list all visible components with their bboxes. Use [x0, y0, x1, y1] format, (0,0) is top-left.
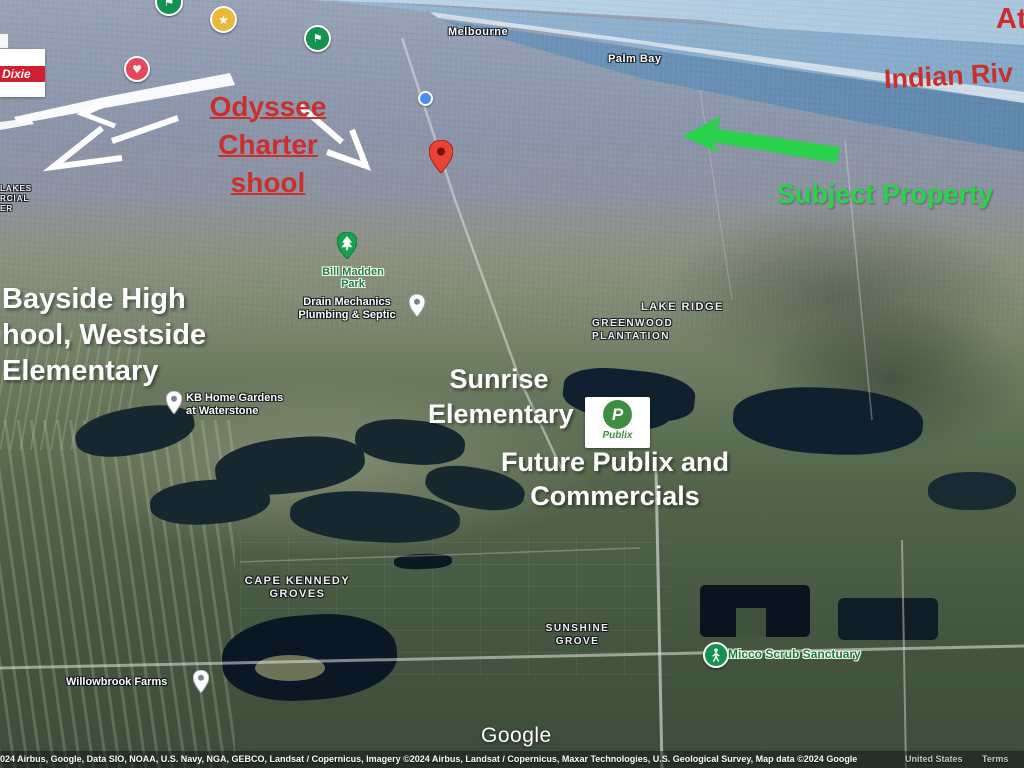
green-arrow [682, 116, 840, 163]
annotation-atlantic-partial: At [996, 3, 1024, 36]
attribution-text: 024 Airbus, Google, Data SIO, NOAA, U.S.… [0, 754, 898, 764]
annotation-sunrise-elementary: Sunrise Elementary [428, 362, 570, 432]
annotation-subject-property: Subject Property [777, 179, 993, 210]
annotation-future-publix: Future Publix and Commercials [495, 445, 735, 513]
terms-link[interactable]: Terms [982, 754, 1008, 764]
attribution-region: United States [905, 754, 963, 764]
annotation-bayside-westside: Bayside High hool, Westside Elementary [2, 281, 206, 389]
aerial-map-view[interactable]: Melbourne Palm Bay LAKES RCIAL ER LAKE R… [0, 0, 1024, 768]
attribution-bar: 024 Airbus, Google, Data SIO, NOAA, U.S.… [0, 751, 1024, 768]
google-logo: Google [481, 724, 552, 748]
annotation-odyssee-charter: Odyssee Charter shool [163, 88, 373, 202]
white-outline-arrowhead [53, 128, 122, 167]
